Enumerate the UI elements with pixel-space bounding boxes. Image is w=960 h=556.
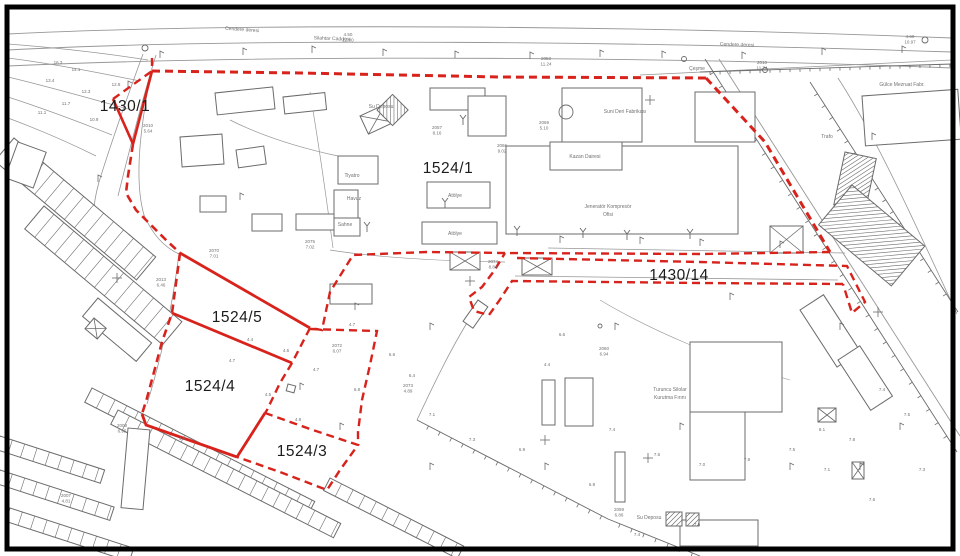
parcel-boundary-dashed [152,71,706,78]
facility-label: Havuz [347,196,362,202]
survey-point-id: 2013 [156,277,167,282]
fence-tick [484,456,486,460]
spot-height-label: 7.4 [879,387,886,392]
fence-tick [577,504,579,508]
fence-tick [519,474,521,478]
fence-tick [857,301,860,303]
fence-tick [461,444,463,448]
facility-label: Ofisi [603,212,613,218]
manhole-circle-icon [598,324,602,328]
fence-tick [643,534,644,538]
parcel-boundary-dashed [126,144,180,253]
facility-label: Kurutma Fırını [654,395,686,401]
parcel-label-1524-1: 1524/1 [423,160,473,177]
utility-pole-icon [364,222,370,232]
survey-flag-icon [680,423,684,430]
building-footprint [852,462,864,479]
survey-point-id: 2008 [117,423,128,428]
survey-point-id: 2010 [143,123,154,128]
road-line [640,60,952,75]
survey-point-id: 2059 [614,507,625,512]
fence-tick [822,106,825,108]
spot-height-label: 4.7 [313,367,320,372]
spot-height-label: 11.1 [38,110,47,115]
spot-height-label: 6.6 [559,332,566,337]
facility-label: Atölye [448,231,462,237]
survey-flag-icon [600,50,604,57]
parcel-label-1524-4: 1524/4 [185,378,235,395]
survey-point-id: 2060 [599,346,610,351]
spot-height-label: 7.8 [849,437,856,442]
fence-tick [450,438,452,442]
spot-height-label: 4.4 [544,362,551,367]
survey-point-elevation: 6.86 [615,513,624,518]
survey-flag-icon [430,323,434,330]
survey-point-elevation: 8.16 [433,131,442,136]
spot-height-label: 7.5 [904,412,911,417]
fence-tick [926,409,929,411]
spot-height-label: 7.5 [789,447,796,452]
fence-tick [874,328,877,330]
spot-height-label: 4.7 [229,358,236,363]
fence-tick [619,524,620,528]
building-footprint [200,196,226,212]
street-label: Cendere deresi [225,26,260,34]
survey-flag-icon [900,423,904,430]
spot-height-label: 7.0 [699,462,706,467]
spot-height-label: 7.3 [919,467,926,472]
road-line [8,42,952,52]
fence-tick [542,486,544,490]
building-footprint [286,384,296,393]
building-footprint [468,96,506,136]
survey-point-elevation: 7.02 [306,245,315,250]
fence-tick [779,180,782,182]
survey-flag-icon [530,52,534,59]
building-outline [562,88,642,142]
manhole-circle-icon [142,45,148,51]
spot-height-label: 6.6 [389,352,396,357]
facility-label: Sahne [338,222,353,228]
survey-point-elevation: 10.97 [904,40,916,45]
parcel-label-1524-5: 1524/5 [212,309,262,326]
building-outline [283,93,327,114]
facility-label: Tiyatro [344,173,359,179]
fence-tick [814,94,817,96]
fence-line [417,420,608,519]
building-footprint [252,214,282,231]
building-outline [690,412,745,480]
building-outline [542,380,555,425]
spot-height-label: 16.3 [54,60,63,65]
fence-tick [797,207,800,209]
building-footprint [818,408,836,422]
spot-height-label: 4.6 [283,348,290,353]
survey-point-id: 2075 [305,239,316,244]
building-footprint [565,378,593,426]
fence-tick [631,529,632,533]
fence-tick [600,516,602,520]
fence-tick [438,432,440,436]
survey-flag-icon [560,236,564,243]
survey-point-id: 2007 [61,493,72,498]
survey-point-elevation: 9.02 [498,149,507,154]
parcel-label-1430-14: 1430/14 [649,267,709,284]
survey-point-id: 2010 [757,60,768,65]
fence-tick [943,436,946,438]
fence-tick [920,259,923,261]
survey-point-elevation: 6.94 [600,352,609,357]
survey-flag-icon [640,237,644,244]
building-footprint [215,87,275,115]
facility-label: Trafo [821,134,833,140]
parcel-boundary-dashed [310,329,377,445]
spot-height-label: 7.1 [429,412,436,417]
building-outline [838,346,892,410]
spot-height-label: 6.8 [354,387,361,392]
building-footprint [121,428,150,510]
fence-tick [882,200,885,202]
building-outline [338,156,378,184]
facility-label: Jeneratör Kompresör [585,204,632,210]
building-footprint [770,226,803,253]
survey-point-elevation: 4.81 [62,499,71,504]
spot-height-label: 7.1 [824,467,831,472]
facility-label: Gülce Mezruat Fabr. [879,82,924,88]
survey-point-id: 2074 [488,259,499,264]
fence-tick [473,450,475,454]
fence-tick [667,543,668,547]
survey-point-id: 4.60 [906,34,915,39]
fence-tick [710,72,713,74]
survey-flag-icon [545,463,549,470]
survey-point-elevation: 6.95 [118,429,127,434]
fence-tick [866,315,869,317]
spot-height-label: 6.9 [519,447,526,452]
fence-tick [831,261,834,263]
fence-tick [848,288,851,290]
building-footprint [562,88,642,142]
building-outline [215,87,275,115]
building-outline [565,378,593,426]
survey-flag-icon [742,52,746,59]
spot-height-label: 8.1 [819,427,826,432]
spot-height-label: 4.8 [295,417,302,422]
facility-label: Su Deposu [369,104,394,110]
fence-tick [823,248,826,250]
spot-height-label: 4.4 [247,337,254,342]
survey-point-elevation: 6.07 [333,349,342,354]
spot-height-label: 11.7 [62,101,71,106]
building-footprint [324,478,464,556]
survey-point-elevation: 8.84 [489,265,498,270]
survey-flag-icon [822,48,826,55]
survey-point-elevation: 4.89 [404,389,413,394]
fence-tick [928,270,931,272]
survey-flag-icon [455,51,459,58]
fence-tick [814,234,817,236]
spot-height-label: 7.8 [744,457,751,462]
building-footprint [283,93,327,114]
fence-tick [427,426,429,430]
building-footprint [522,258,552,275]
fence-line [700,64,952,72]
fence-tick [655,538,656,542]
survey-flag-icon [243,48,247,55]
building-footprint [542,380,555,425]
fence-tick [496,462,498,466]
building-footprint [450,252,480,270]
building-footprint [615,452,625,502]
spot-height-label: 4.5 [265,392,272,397]
fence-tick [909,382,912,384]
facility-label: Atölye [448,193,462,199]
street-label: Cendere deresi [720,41,754,48]
survey-point-id: 2066 [497,143,508,148]
fence-tick [531,480,533,484]
fence-tick [771,167,774,169]
survey-flag-icon [312,46,316,53]
building-footprint [338,156,378,184]
fence-tick [788,194,791,196]
fence-tick [900,369,903,371]
manhole-circle-icon [922,37,928,43]
parcel-label-1430-1: 1430/1 [100,98,150,115]
building-footprint [330,284,372,304]
survey-flag-icon [240,193,244,200]
hatched-building [666,512,682,526]
survey-flag-icon [790,463,794,470]
fence-tick [565,498,567,502]
building-outline [236,146,266,168]
building-footprint [236,146,266,168]
spot-height-label: 14.1 [72,67,81,72]
building-outline [615,452,625,502]
survey-point-id: 2069 [539,120,550,125]
survey-flag-icon [902,46,906,53]
survey-flag-icon [700,239,704,246]
building-outline [862,89,960,146]
spot-height-label: 10.9 [90,117,99,122]
survey-point-elevation: 11.74 [757,66,768,71]
road-line [8,44,148,60]
spot-height-label: 7.6 [869,497,876,502]
road-line [8,97,112,135]
fence-tick [892,355,895,357]
survey-point-id: 2073 [403,383,414,388]
fence-tick [935,282,938,284]
building-outline [286,384,296,393]
survey-point-id: 2072 [332,343,343,348]
building-footprint [690,342,782,412]
fence-tick [837,129,840,131]
facility-label: Suni Deri Fabrikası [604,109,647,115]
fence-tick [918,396,921,398]
street-label: Silahtar Caddesi [314,35,351,42]
spot-height-label: 13.4 [46,78,55,83]
survey-point-elevation: 7.01 [210,254,219,259]
survey-flag-icon [730,293,734,300]
spot-height-label: 6.4 [409,373,416,378]
spot-height-label: 4.7 [349,322,356,327]
parcel-boundary-dashed [292,328,310,363]
spot-height-label: 7.5 [694,522,701,527]
survey-point-id: 2053 [541,56,552,61]
building-outline [296,214,334,230]
building-outline [252,214,282,231]
fence-tick [890,212,893,214]
facility-label: Turuncu Silolar [653,387,687,393]
fence-tick [840,275,843,277]
building-footprint [180,134,224,167]
survey-flag-icon [383,49,387,56]
spot-height-label: 12.8 [112,82,121,87]
fence-tick [719,86,722,88]
survey-point-id: 2057 [432,125,443,130]
building-outline [334,190,358,218]
fence-tick [875,188,878,190]
building-footprint [862,89,960,146]
facility-label: Su Deposu [637,515,662,521]
survey-flag-icon [615,323,619,330]
building-outline [200,196,226,212]
spot-height-label: 6.9 [589,482,596,487]
spot-height-label: 12.3 [82,89,91,94]
spot-height-label: 7.3 [469,437,476,442]
fence-tick [883,342,886,344]
building-outline [468,96,506,136]
survey-point-id: 2070 [209,248,220,253]
fence-tick [845,141,848,143]
building-outline [330,284,372,304]
fence-tick [829,117,832,119]
spot-height-label: 7.6 [654,452,661,457]
fence-tick [805,221,808,223]
survey-point-elevation: 6.46 [157,283,166,288]
building-outline [690,342,782,412]
spot-height-label: 7.4 [634,532,641,537]
building-footprint [690,412,745,480]
building-outline [180,134,224,167]
building-footprint [838,346,892,410]
parcel-boundary-solid [237,413,265,457]
parcel-label-1524-3: 1524/3 [277,443,327,460]
survey-point-elevation: 11.24 [541,62,552,67]
fence-tick [943,294,946,296]
survey-flag-icon [160,51,164,58]
utility-pole-icon [460,115,466,125]
fence-tick [762,153,765,155]
road-line [8,27,952,38]
survey-flag-icon [300,383,304,390]
building-outline [121,428,150,510]
survey-point-elevation: 5.64 [144,129,153,134]
building-footprint [296,214,334,230]
survey-flag-icon [662,51,666,58]
fence-tick [554,492,556,496]
survey-point-elevation: 5.10 [540,126,549,131]
spot-height-label: 4.6 [179,436,186,441]
spot-height-label: 7.4 [609,427,616,432]
survey-flag-icon [430,463,434,470]
facility-label: Kazan Dairesi [569,154,600,160]
fence-tick [588,510,590,514]
fence-tick [935,423,938,425]
building-footprint [334,190,358,218]
building-outline [324,478,464,556]
street-label: Çeşme [689,66,705,72]
survey-flag-icon [340,423,344,430]
road-line [417,318,470,420]
fence-tick [507,468,509,472]
cadastral-map-canvas: 20105.64205311.24201011.744.5012.004.601… [0,0,960,556]
map-page: 20105.64205311.24201011.744.5012.004.601… [0,0,960,556]
